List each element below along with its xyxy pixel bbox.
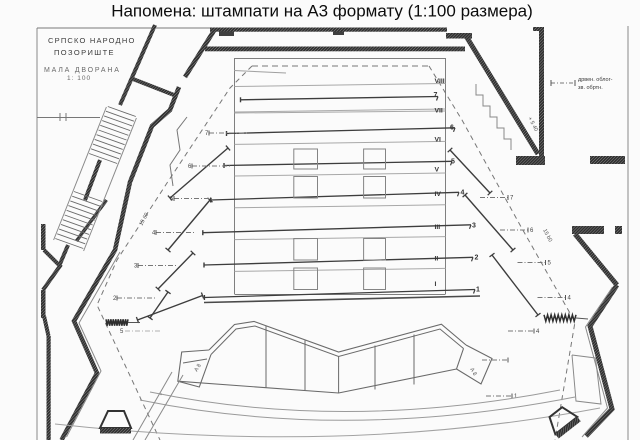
svg-text:МАЛА ДВОРАНА: МАЛА ДВОРАНА: [44, 67, 121, 74]
svg-text:ПОЗОРИШТЕ: ПОЗОРИШТЕ: [54, 48, 115, 57]
svg-text:7: 7: [434, 92, 438, 99]
svg-text:5: 5: [451, 159, 455, 166]
svg-text:I: I: [435, 281, 437, 288]
svg-text:VII: VII: [435, 108, 443, 115]
svg-text:1: 100: 1: 100: [67, 75, 91, 82]
svg-text:II: II: [435, 256, 439, 263]
svg-text:III: III: [435, 224, 441, 231]
svg-text:3: 3: [472, 223, 476, 230]
svg-text:VI: VI: [435, 137, 442, 144]
svg-text:IV: IV: [435, 191, 442, 198]
svg-text:2: 2: [475, 255, 479, 262]
svg-text:дрвен. облог-: дрвен. облог-: [578, 77, 613, 83]
svg-text:зв. обртн.: зв. обртн.: [578, 85, 603, 91]
svg-text:СРПСКО НАРОДНО: СРПСКО НАРОДНО: [48, 36, 135, 45]
svg-text:V: V: [435, 167, 440, 174]
svg-text:6: 6: [450, 125, 454, 132]
svg-text:VIII: VIII: [435, 78, 445, 85]
svg-text:Напомена: штампати на А3 форма: Напомена: штампати на А3 формату (1:100 …: [111, 2, 533, 21]
svg-text:1: 1: [476, 287, 480, 294]
